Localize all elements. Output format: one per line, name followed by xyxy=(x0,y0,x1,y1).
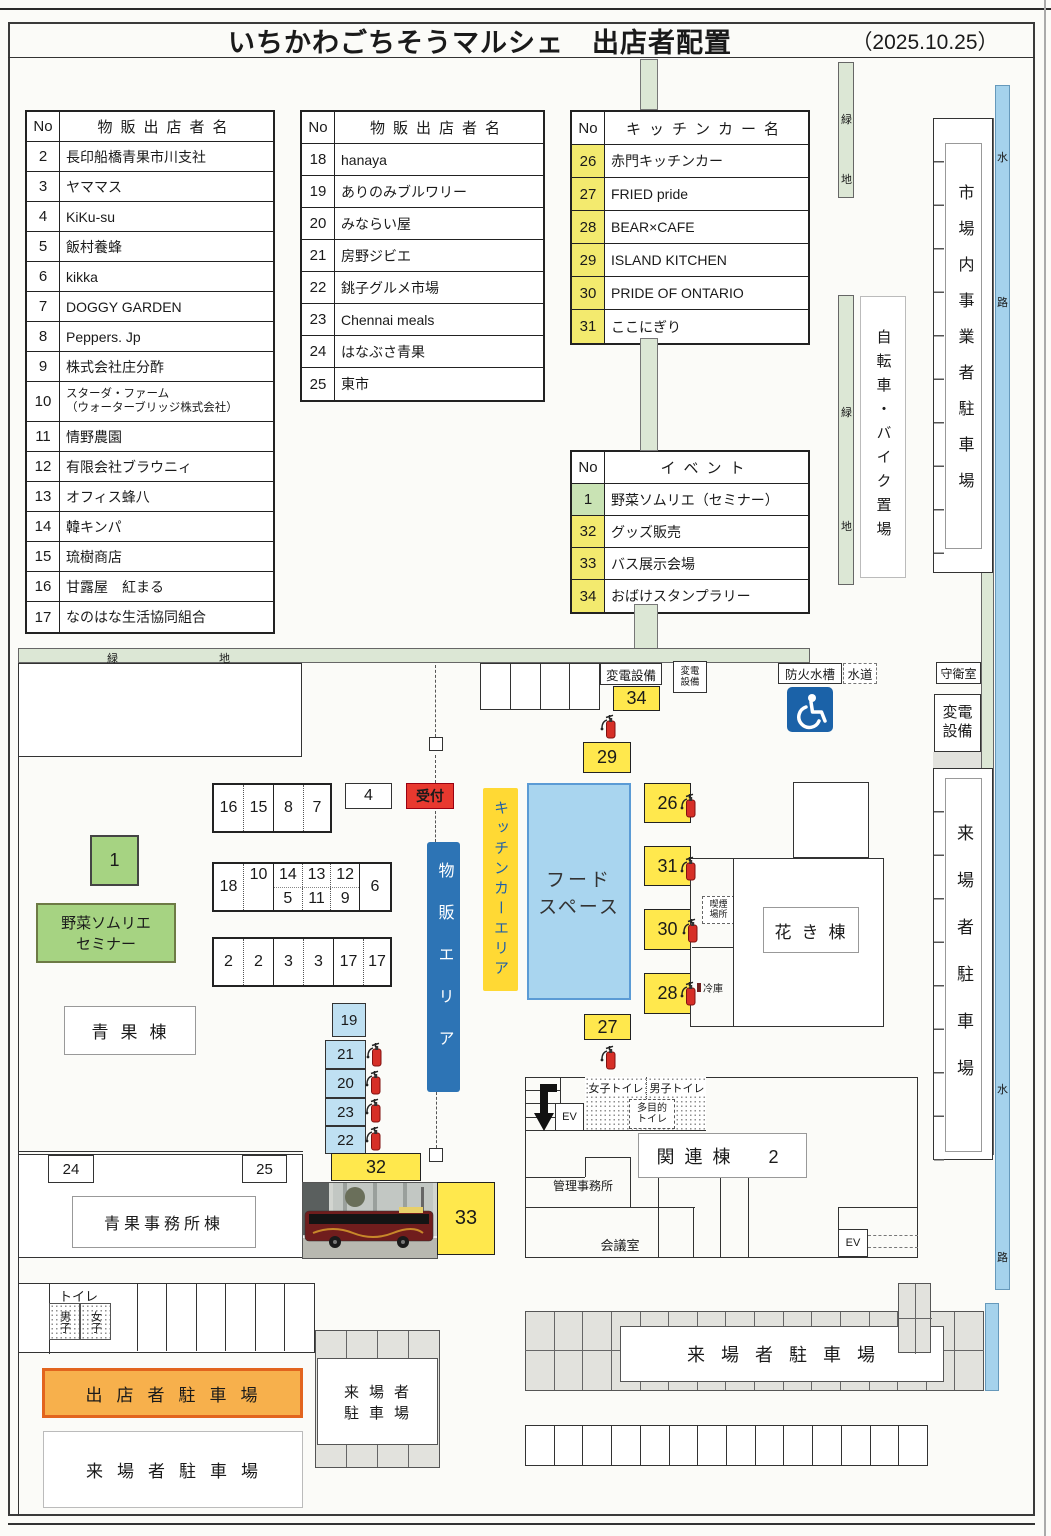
bicycle-parking-area: 自転車・バイク置場 xyxy=(860,296,906,578)
spot-34: 34 xyxy=(613,686,660,711)
substation-right: 変電設備 xyxy=(934,694,981,752)
women-toilet-box: 女子 xyxy=(80,1303,111,1340)
water-char: 水 xyxy=(997,1081,1008,1097)
row-no: 33 xyxy=(572,548,605,579)
kanren-labelbox: 関連棟 2 xyxy=(638,1133,807,1178)
parking-stall xyxy=(256,1284,286,1351)
parking-stall xyxy=(727,1426,756,1465)
kitchen-area-label: キッチンカーエリア xyxy=(490,800,511,980)
table-row: 4KiKu-su xyxy=(27,202,273,232)
col-name: 物販出店者名 xyxy=(60,112,273,141)
table-row: 16甘露屋 紅まる xyxy=(27,572,273,602)
ground-char: 地 xyxy=(841,171,852,187)
table-row: 13オフィス蜂八 xyxy=(27,482,273,512)
building-top-line xyxy=(18,1151,303,1152)
market-parking-label: 市場内事業者駐車場 xyxy=(952,184,976,508)
row-name: ありのみブルワリー xyxy=(335,176,543,207)
row-no: 2 xyxy=(27,142,60,171)
table-row: 27FRIED pride xyxy=(572,178,808,211)
bottom-double-line xyxy=(8,1523,1035,1525)
parking-stall xyxy=(555,1426,584,1465)
site-wall xyxy=(692,947,733,948)
row-name: 琉樹商店 xyxy=(60,542,273,571)
meeting-room-label: 会議室 xyxy=(588,1236,652,1252)
table-row: 24はなぶさ青果 xyxy=(302,336,543,368)
parking-stall xyxy=(583,1312,612,1390)
fire-extinguisher-icon xyxy=(600,714,618,742)
water-supply: 水道 xyxy=(843,663,877,684)
row-no: 21 xyxy=(302,240,335,271)
guide-dash xyxy=(436,1092,437,1148)
table-row: 31ここにぎり xyxy=(572,310,808,343)
col-name: キッチンカー名 xyxy=(605,112,808,144)
parking-stall xyxy=(612,1426,641,1465)
row-name: はなぶさ青果 xyxy=(335,336,543,367)
parking-stall xyxy=(871,1426,900,1465)
row-no: 14 xyxy=(27,512,60,541)
booth-cell: 16 xyxy=(214,785,244,831)
food-space-line: フード xyxy=(546,865,612,892)
row-no: 27 xyxy=(572,178,605,210)
top-edge-line xyxy=(0,8,1051,10)
seika-office-labelbox: 青果事務所棟 xyxy=(72,1196,256,1248)
row-no: 19 xyxy=(302,176,335,207)
reception: 受付 xyxy=(406,783,454,809)
page-date: （2025.10.25） xyxy=(830,27,1020,55)
seminar-spot-1: 1 xyxy=(90,835,139,886)
booth-cell: 13 xyxy=(303,864,332,887)
seminar-box: 野菜ソムリエ セミナー xyxy=(36,903,176,963)
row-no: 8 xyxy=(27,322,60,351)
stall-row-top xyxy=(480,663,600,710)
table-row: 29ISLAND KITCHEN xyxy=(572,244,808,277)
col-name: イベント xyxy=(605,452,808,483)
inner-wall xyxy=(838,1207,918,1208)
guide-square xyxy=(429,1148,443,1162)
row-no: 12 xyxy=(27,452,60,481)
gray-gap xyxy=(933,752,981,768)
parking-stall xyxy=(526,1426,555,1465)
row-name: グッズ販売 xyxy=(605,516,808,547)
parking-ticks xyxy=(934,769,944,1161)
table-row: 28BEAR×CAFE xyxy=(572,211,808,244)
table-row: 11情野農園 xyxy=(27,422,273,452)
col-no: No xyxy=(572,452,605,483)
spot-19: 19 xyxy=(332,1003,366,1037)
table-row: 33バス展示会場 xyxy=(572,548,808,580)
spot-22: 22 xyxy=(325,1126,366,1154)
site-boundary-left xyxy=(18,663,19,1516)
booth-cell: 2 xyxy=(244,939,274,985)
booth-cell: 7 xyxy=(304,785,330,831)
table-header-row: Noイベント xyxy=(572,452,808,484)
smoking-area: 喫煙 場所 xyxy=(702,896,735,924)
row-name: バス展示会場 xyxy=(605,548,808,579)
parking-stall xyxy=(813,1426,842,1465)
row-no: 7 xyxy=(27,292,60,321)
vendor-table-goods-2: No物販出店者名18hanaya19ありのみブルワリー20みならい屋21房野ジビ… xyxy=(300,110,545,402)
right-edge-line xyxy=(1044,0,1046,1536)
row-name: 株式会社庄分酢 xyxy=(60,352,273,381)
table-row: 5飯村養蜂 xyxy=(27,232,273,262)
booth-cell: 6 xyxy=(360,864,390,910)
page-title: いちかわごちそうマルシェ 出店者配置 xyxy=(190,24,770,56)
multi-toilet-box: 多目的 トイレ xyxy=(629,1099,675,1129)
row-name: なのはな生活協同組合 xyxy=(60,602,273,632)
table-header-row: No物販出店者名 xyxy=(302,112,543,144)
flower-building-labelbox: 花き棟 xyxy=(763,907,859,953)
row-name: 房野ジビエ xyxy=(335,240,543,271)
dashed-detail xyxy=(868,1235,918,1236)
row-no: 25 xyxy=(302,368,335,400)
goods-area-label: 物販エリア xyxy=(432,862,456,1072)
row-no: 10 xyxy=(27,382,60,421)
row-name: みならい屋 xyxy=(335,208,543,239)
row-no: 32 xyxy=(572,516,605,547)
table-row: 7DOGGY GARDEN xyxy=(27,292,273,322)
green-strip-connector-low xyxy=(634,604,658,650)
table-row: 17なのはな生活協同組合 xyxy=(27,602,273,632)
event-table: Noイベント1野菜ソムリエ（セミナー）32グッズ販売33バス展示会場34おばけス… xyxy=(570,450,810,614)
waterway-strip: 水 路 水 路 xyxy=(995,85,1010,1290)
row-name: ISLAND KITCHEN xyxy=(605,244,808,276)
row-no: 34 xyxy=(572,580,605,612)
dashed-detail xyxy=(868,1247,918,1248)
row-name: hanaya xyxy=(335,144,543,175)
row-no: 30 xyxy=(572,277,605,309)
substation-a: 変電設備 xyxy=(600,663,662,685)
bicycle-parking-label: 自転車・バイク置場 xyxy=(873,329,894,545)
table-row: 23Chennai meals xyxy=(302,304,543,336)
booth-cell: 5 xyxy=(274,888,303,911)
row-name: FRIED pride xyxy=(605,178,808,210)
table-header-row: Noキッチンカー名 xyxy=(572,112,808,145)
table-row: 20みならい屋 xyxy=(302,208,543,240)
wheelchair-icon xyxy=(787,687,833,732)
row-no: 11 xyxy=(27,422,60,451)
spot-29: 29 xyxy=(583,742,631,773)
table-row: 12有限会社ブラウニィ xyxy=(27,452,273,482)
spot-23: 23 xyxy=(325,1098,366,1126)
row-no: 18 xyxy=(302,144,335,175)
booth-cell: 17 xyxy=(334,939,364,985)
visitor-parking-bottom-left: 来場者駐車場 xyxy=(43,1431,303,1508)
parking-ticks xyxy=(934,119,944,574)
cell-line xyxy=(915,1284,916,1354)
visitor-parking-label: 来場者駐車場 xyxy=(951,824,976,1106)
booth-subgrid: 14 13 12 5 11 9 xyxy=(274,864,360,910)
col-no: No xyxy=(572,112,605,144)
flower-building-annex xyxy=(793,782,869,858)
way-char: 路 xyxy=(997,1249,1008,1265)
spot-33: 33 xyxy=(437,1182,495,1255)
parking-stall xyxy=(108,1284,138,1351)
row-name: 韓キンパ xyxy=(60,512,273,541)
table-row: 14韓キンパ xyxy=(27,512,273,542)
spot-24: 24 xyxy=(48,1155,94,1183)
fire-extinguisher-icon xyxy=(682,918,700,946)
guide-dash xyxy=(435,755,436,783)
inner-wall xyxy=(630,1157,631,1207)
row-name: 飯村養蜂 xyxy=(60,232,273,261)
guide-dash xyxy=(435,811,436,842)
spot-21: 21 xyxy=(325,1040,366,1069)
visitor-parking-bottom-right: 来場者駐車場 xyxy=(620,1326,944,1382)
booth-cell: 11 xyxy=(303,888,332,911)
table-row: 8Peppers. Jp xyxy=(27,322,273,352)
substation-label: 変電設備 xyxy=(942,704,974,742)
row-no: 29 xyxy=(572,244,605,276)
cold-storage: 冷庫 xyxy=(697,980,737,994)
row-name: 甘露屋 紅まる xyxy=(60,572,273,601)
booth-cell: 9 xyxy=(331,888,359,911)
seminar-line: 野菜ソムリエ xyxy=(61,912,151,933)
row-name: 野菜ソムリエ（セミナー） xyxy=(605,484,808,515)
corner-cells xyxy=(898,1283,931,1353)
table-row: 9株式会社庄分酢 xyxy=(27,352,273,382)
women-label: 女子 xyxy=(88,1311,104,1333)
booth-row-1: 16 15 8 7 xyxy=(212,783,332,833)
seika-building-labelbox: 青果棟 xyxy=(64,1006,196,1055)
empty-lot xyxy=(18,663,302,757)
market-layout-page: いちかわごちそうマルシェ 出店者配置 （2025.10.25） No物販出店者名… xyxy=(0,0,1051,1536)
table-row: 22銚子グルメ市場 xyxy=(302,272,543,304)
fire-extinguisher-icon xyxy=(680,856,698,884)
row-no: 28 xyxy=(572,211,605,243)
kitchen-car-table: Noキッチンカー名26赤門キッチンカー27FRIED pride28BEAR×C… xyxy=(570,110,810,345)
seminar-line: セミナー xyxy=(76,933,136,954)
row-name: 東市 xyxy=(335,368,543,400)
visitor-parking-right: 来場者駐車場 xyxy=(933,768,993,1160)
food-space-line: スペース xyxy=(538,892,620,919)
cold-storage-label: 冷庫 xyxy=(703,980,723,995)
spot-27: 27 xyxy=(584,1014,631,1040)
water-char: 水 xyxy=(997,149,1008,165)
inner-wall xyxy=(525,1207,695,1208)
row-name: スターダ・ファーム （ウォーターブリッジ株式会社） xyxy=(60,382,273,421)
parking-stall xyxy=(285,1284,314,1351)
row-no: 4 xyxy=(27,202,60,231)
fire-water-tank: 防火水槽 xyxy=(778,663,842,684)
women-toilet-label: 女子トイレ xyxy=(588,1081,644,1095)
row-no: 22 xyxy=(302,272,335,303)
parking-stall xyxy=(526,1312,555,1390)
booth-row-3: 2 2 3 3 17 17 xyxy=(212,937,392,987)
green-char: 緑 xyxy=(841,404,852,420)
substation-label: 変電設備 xyxy=(680,666,701,689)
row-no: 23 xyxy=(302,304,335,335)
visitor-parking-right-labelbox: 来場者駐車場 xyxy=(945,778,982,1152)
col-no: No xyxy=(27,112,60,141)
row-name: KiKu-su xyxy=(60,202,273,231)
visitor-parking-line: 来場者 xyxy=(336,1381,419,1402)
bus-photo xyxy=(302,1182,438,1259)
way-char: 路 xyxy=(997,294,1008,310)
table-row: 6kikka xyxy=(27,262,273,292)
site-wall xyxy=(690,1026,735,1027)
bottom-stall-row xyxy=(525,1425,928,1466)
table-row: 21房野ジビエ xyxy=(302,240,543,272)
row-name: ヤママス xyxy=(60,172,273,201)
row-no: 5 xyxy=(27,232,60,261)
booth-cell: 8 xyxy=(274,785,304,831)
parking-stall xyxy=(570,664,599,709)
parking-stall xyxy=(955,1312,983,1390)
table-row: 1野菜ソムリエ（セミナー） xyxy=(572,484,808,516)
fire-extinguisher-icon xyxy=(680,793,698,821)
admin-office-label: 管理事務所 xyxy=(540,1177,626,1193)
parking-stall xyxy=(583,1426,612,1465)
green-strip-connector-top xyxy=(640,59,658,110)
guide-dash xyxy=(435,665,436,737)
booth-cell: 12 xyxy=(331,864,359,887)
row-name: BEAR×CAFE xyxy=(605,211,808,243)
visitor-parking-line: 駐車場 xyxy=(336,1402,419,1423)
table-row: 34おばけスタンプラリー xyxy=(572,580,808,612)
inner-wall xyxy=(585,1157,586,1177)
elevator-2: EV xyxy=(838,1229,868,1257)
row-name: 情野農園 xyxy=(60,422,273,451)
goods-area-banner: 物販エリア xyxy=(427,842,460,1092)
inner-wall xyxy=(658,1178,659,1258)
green-char: 緑 xyxy=(841,111,852,127)
inner-wall xyxy=(720,1178,721,1258)
parking-stall xyxy=(167,1284,197,1351)
parking-stall xyxy=(784,1426,813,1465)
green-strip-top-right: 緑 地 xyxy=(838,62,854,198)
vendor-table-goods-1: No物販出店者名2長印船橋青果市川支社3ヤママス4KiKu-su5飯村養蜂6ki… xyxy=(25,110,275,634)
parking-stall xyxy=(555,1312,584,1390)
row-no: 26 xyxy=(572,145,605,177)
booth-cell: 3 xyxy=(274,939,304,985)
col-no: No xyxy=(302,112,335,143)
men-toilet-label: 男子トイレ xyxy=(649,1081,705,1095)
parking-stall xyxy=(197,1284,227,1351)
row-no: 6 xyxy=(27,262,60,291)
booth-4: 4 xyxy=(345,783,392,809)
inner-wall xyxy=(693,1207,694,1258)
col-name: 物販出店者名 xyxy=(335,112,543,143)
inner-wall xyxy=(748,1178,749,1258)
fire-extinguisher-icon xyxy=(680,981,698,1009)
fire-extinguisher-icon xyxy=(365,1126,383,1154)
spot-20: 20 xyxy=(325,1069,366,1098)
market-parking-labelbox: 市場内事業者駐車場 xyxy=(945,143,982,549)
row-no: 1 xyxy=(572,484,605,515)
toilet-stalls xyxy=(108,1284,314,1351)
spot-25: 25 xyxy=(242,1155,287,1183)
substation-b: 変電設備 xyxy=(673,661,707,693)
smoking-line: 場所 xyxy=(709,910,727,920)
fire-extinguisher-icon xyxy=(365,1070,383,1098)
multi-toilet-line: トイレ xyxy=(637,1114,667,1126)
booth-cell: 3 xyxy=(304,939,334,985)
food-space: フード スペース xyxy=(527,783,631,1000)
parking-stall xyxy=(756,1426,785,1465)
table-row: 3ヤママス xyxy=(27,172,273,202)
vendor-parking: 出店者駐車場 xyxy=(42,1368,303,1418)
parking-stall xyxy=(226,1284,256,1351)
table-row: 2長印船橋青果市川支社 xyxy=(27,142,273,172)
parking-stall xyxy=(698,1426,727,1465)
booth-cell: 15 xyxy=(244,785,274,831)
booth-cell: 17 xyxy=(364,939,390,985)
parking-stall xyxy=(842,1426,871,1465)
booth-cell: 2 xyxy=(214,939,244,985)
parking-stall xyxy=(641,1426,670,1465)
green-strip-mid-right: 緑 地 xyxy=(838,295,854,585)
row-name: 長印船橋青果市川支社 xyxy=(60,142,273,171)
table-row: 10スターダ・ファーム （ウォーターブリッジ株式会社） xyxy=(27,382,273,422)
row-no: 13 xyxy=(27,482,60,511)
fire-extinguisher-icon xyxy=(366,1042,384,1070)
fire-extinguisher-icon xyxy=(600,1045,618,1073)
row-name: 銚子グルメ市場 xyxy=(335,272,543,303)
ground-char: 地 xyxy=(841,518,852,534)
row-name: 赤門キッチンカー xyxy=(605,145,808,177)
inner-wall xyxy=(585,1157,630,1158)
parking-stall xyxy=(670,1426,699,1465)
men-label: 男子 xyxy=(57,1311,73,1333)
row-no: 31 xyxy=(572,310,605,343)
row-name: 有限会社ブラウニィ xyxy=(60,452,273,481)
elevator-1: EV xyxy=(555,1103,584,1131)
parking-stall xyxy=(511,664,541,709)
guide-square xyxy=(429,737,443,751)
parking-stall xyxy=(899,1426,927,1465)
booth-cell: 10 xyxy=(244,864,274,910)
table-row: 32グッズ販売 xyxy=(572,516,808,548)
row-name: ここにぎり xyxy=(605,310,808,343)
parking-stall xyxy=(541,664,571,709)
row-no: 3 xyxy=(27,172,60,201)
row-no: 20 xyxy=(302,208,335,239)
row-no: 16 xyxy=(27,572,60,601)
market-business-parking: 市場内事業者駐車場 xyxy=(933,118,993,573)
spot-32: 32 xyxy=(331,1153,421,1181)
booth-row-2: 18 10 14 13 12 5 11 9 6 xyxy=(212,862,392,912)
row-name: オフィス蜂八 xyxy=(60,482,273,511)
row-no: 17 xyxy=(27,602,60,632)
table-row: 19ありのみブルワリー xyxy=(302,176,543,208)
green-strip-connector-mid xyxy=(640,338,658,451)
parking-stall xyxy=(138,1284,168,1351)
table-row: 15琉樹商店 xyxy=(27,542,273,572)
row-name: DOGGY GARDEN xyxy=(60,292,273,321)
table-row: 30PRIDE OF ONTARIO xyxy=(572,277,808,310)
mid-parking-labelbox: 来場者 駐車場 xyxy=(317,1358,438,1445)
multi-toilet-line: 多目的 xyxy=(637,1103,667,1115)
row-no: 24 xyxy=(302,336,335,367)
table-row: 26赤門キッチンカー xyxy=(572,145,808,178)
toilet-block: トイレ 男子 女子 xyxy=(18,1283,315,1353)
booth-cell: 14 xyxy=(274,864,303,887)
booth-cell: 18 xyxy=(214,864,244,910)
row-name: Chennai meals xyxy=(335,304,543,335)
guard-room: 守衛室 xyxy=(936,662,981,684)
row-no: 15 xyxy=(27,542,60,571)
fire-extinguisher-icon xyxy=(365,1098,383,1126)
water-cell xyxy=(985,1303,999,1391)
row-name: PRIDE OF ONTARIO xyxy=(605,277,808,309)
parking-stall xyxy=(481,664,511,709)
row-name: Peppers. Jp xyxy=(60,322,273,351)
table-header-row: No物販出店者名 xyxy=(27,112,273,142)
table-row: 18hanaya xyxy=(302,144,543,176)
men-toilet-box: 男子 xyxy=(49,1303,80,1340)
kitchen-area-banner: キッチンカーエリア xyxy=(483,788,518,991)
row-name: kikka xyxy=(60,262,273,291)
